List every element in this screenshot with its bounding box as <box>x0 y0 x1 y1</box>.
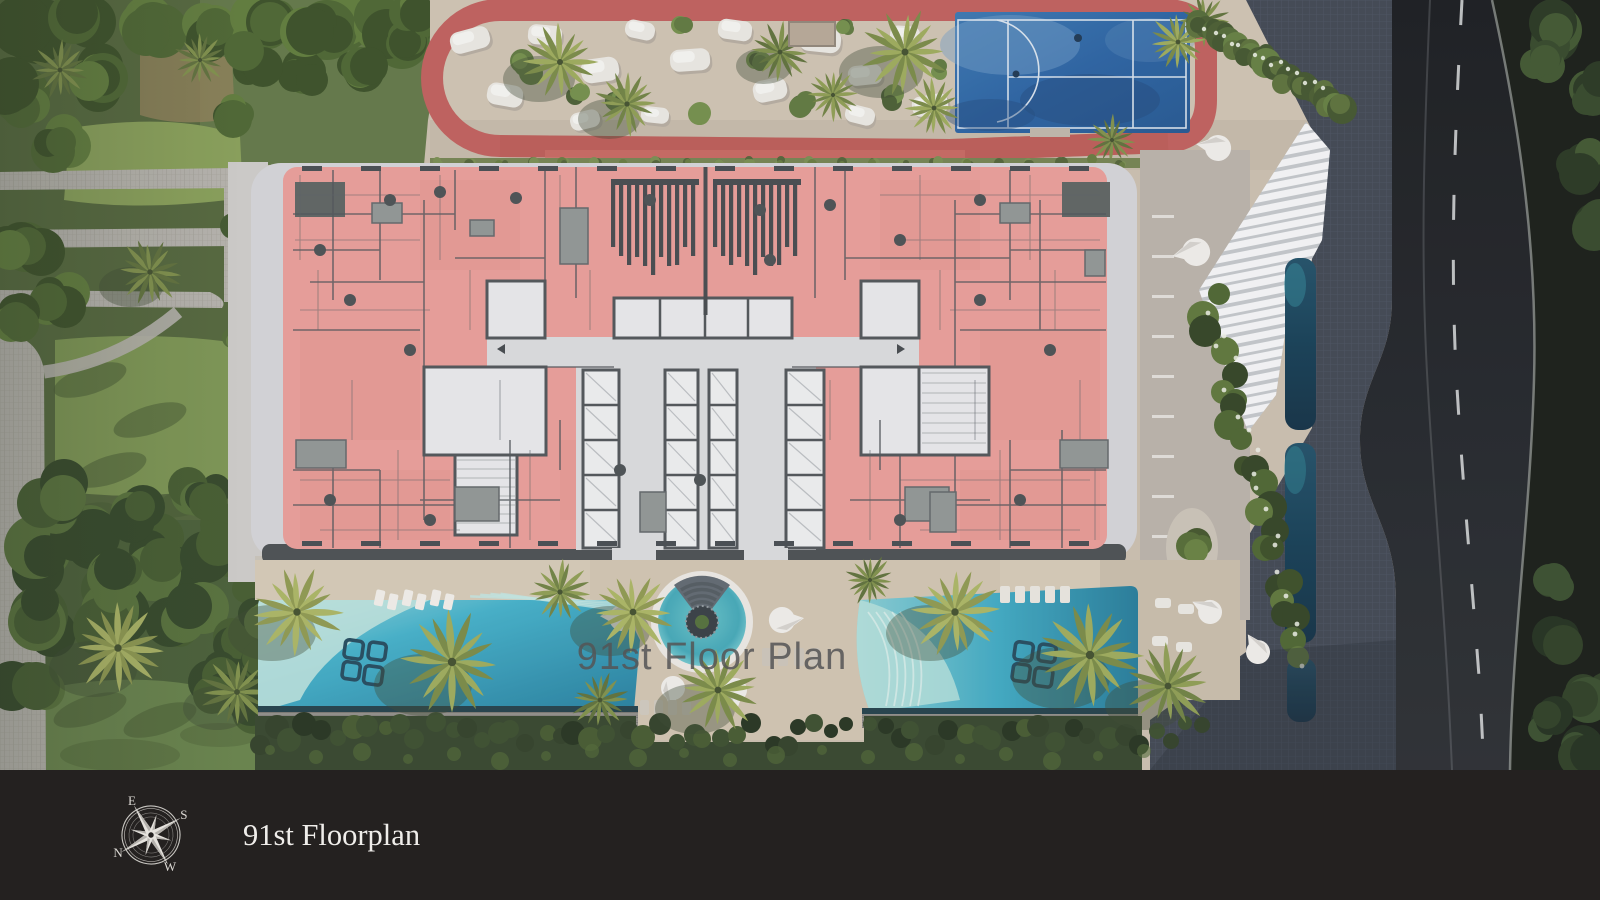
svg-text:S: S <box>180 807 187 822</box>
svg-text:W: W <box>164 859 177 874</box>
svg-text:E: E <box>128 793 136 808</box>
svg-text:91st Floorplan: 91st Floorplan <box>243 818 420 852</box>
svg-text:N: N <box>113 845 123 860</box>
